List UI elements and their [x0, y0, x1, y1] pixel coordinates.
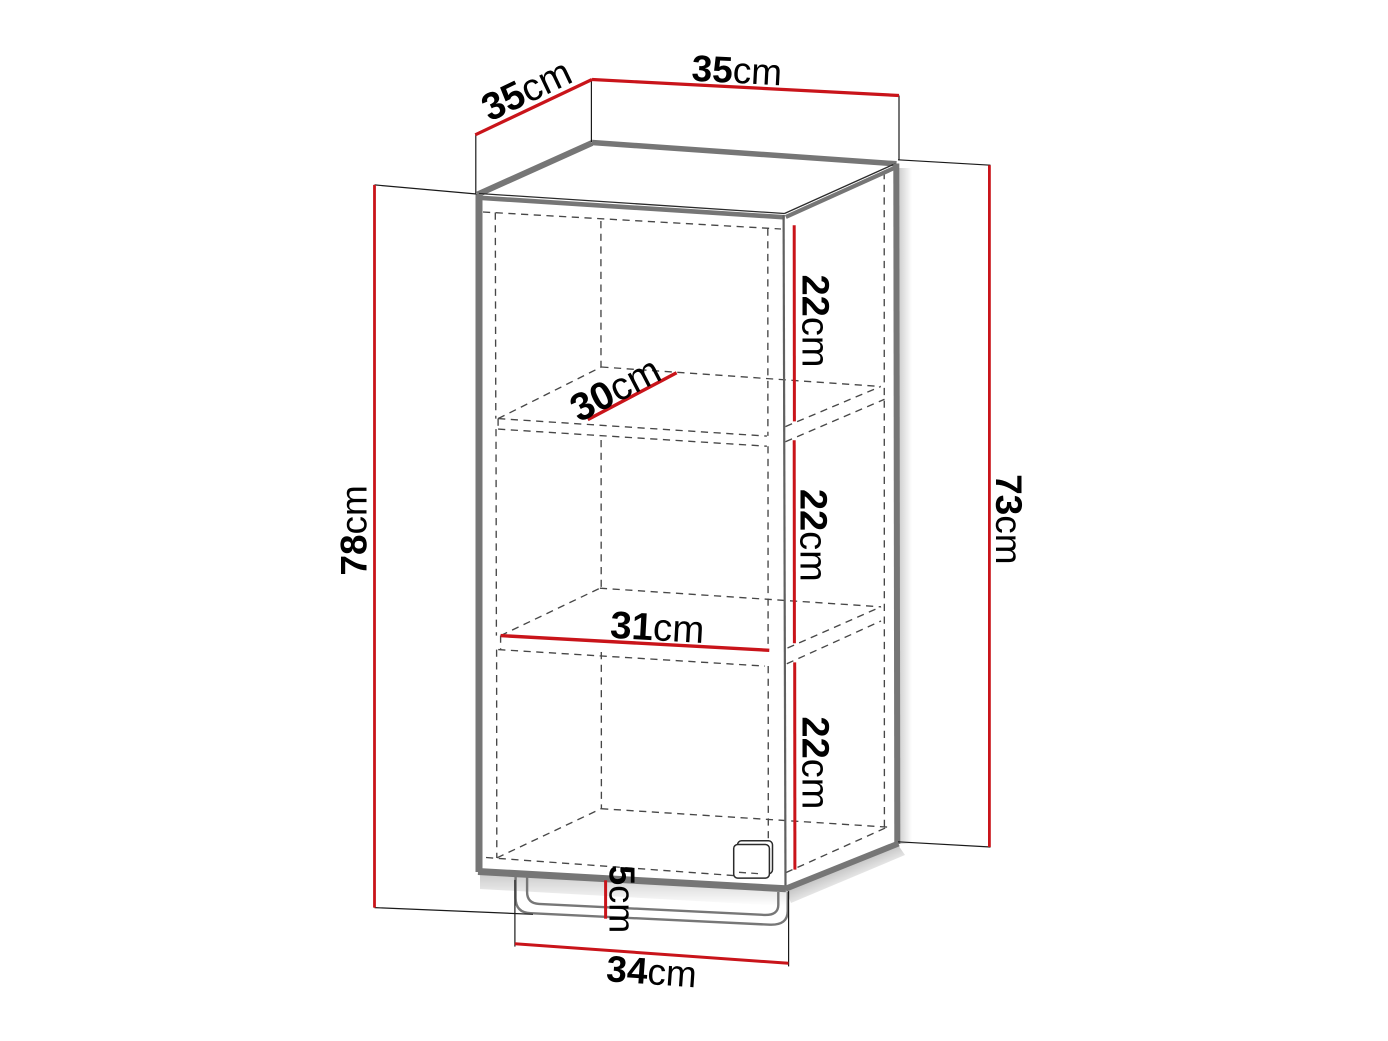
- svg-text:22cm: 22cm: [794, 275, 836, 368]
- svg-text:5cm: 5cm: [601, 865, 642, 933]
- svg-text:78cm: 78cm: [334, 485, 375, 575]
- svg-text:73cm: 73cm: [988, 474, 1029, 564]
- svg-text:35cm: 35cm: [691, 48, 784, 94]
- svg-text:31cm: 31cm: [609, 604, 705, 652]
- svg-text:22cm: 22cm: [791, 489, 833, 582]
- svg-text:34cm: 34cm: [605, 948, 698, 995]
- svg-text:22cm: 22cm: [794, 716, 836, 809]
